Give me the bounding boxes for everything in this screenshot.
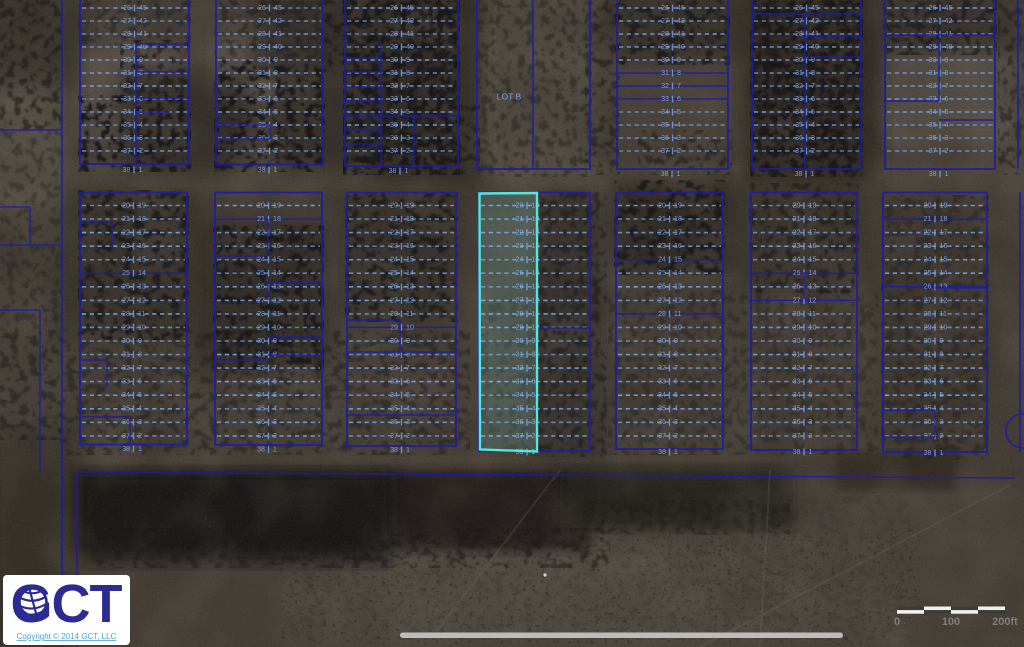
- svg-text:1: 1: [274, 166, 278, 174]
- svg-text:2: 2: [677, 147, 681, 155]
- svg-text:22: 22: [390, 228, 398, 236]
- svg-text:30: 30: [661, 56, 669, 64]
- svg-text:25: 25: [122, 269, 130, 277]
- svg-text:7: 7: [677, 82, 681, 90]
- svg-text:17: 17: [674, 228, 682, 236]
- svg-text:31: 31: [122, 350, 130, 358]
- svg-text:3: 3: [273, 418, 277, 426]
- svg-text:29: 29: [258, 43, 266, 51]
- svg-text:41: 41: [677, 30, 685, 38]
- svg-text:16: 16: [138, 242, 146, 250]
- svg-text:9: 9: [406, 337, 410, 345]
- svg-text:42: 42: [139, 17, 147, 25]
- svg-text:35: 35: [390, 405, 398, 413]
- svg-text:40: 40: [406, 43, 414, 51]
- svg-text:5: 5: [809, 391, 813, 399]
- svg-text:30: 30: [795, 56, 803, 64]
- svg-text:32: 32: [658, 364, 666, 372]
- svg-text:23: 23: [122, 242, 130, 250]
- svg-text:33: 33: [257, 377, 265, 385]
- svg-text:45: 45: [811, 4, 819, 12]
- svg-text:1: 1: [138, 445, 142, 453]
- svg-text:20: 20: [793, 201, 801, 209]
- svg-text:38: 38: [929, 170, 937, 178]
- svg-text:29: 29: [924, 323, 932, 331]
- svg-text:4: 4: [138, 405, 142, 413]
- svg-text:45: 45: [677, 4, 685, 12]
- svg-text:13: 13: [674, 283, 682, 291]
- svg-text:5: 5: [940, 391, 944, 399]
- svg-text:32: 32: [661, 82, 669, 90]
- svg-text:14: 14: [406, 269, 414, 277]
- svg-text:42: 42: [811, 17, 819, 25]
- svg-text:27: 27: [390, 296, 398, 304]
- svg-text:36: 36: [929, 134, 937, 142]
- svg-text:26: 26: [658, 283, 666, 291]
- svg-text:2: 2: [406, 147, 410, 155]
- svg-text:24: 24: [924, 256, 932, 264]
- svg-text:11: 11: [273, 310, 280, 318]
- svg-text:23: 23: [658, 242, 666, 250]
- svg-text:7: 7: [940, 364, 944, 372]
- svg-text:6: 6: [674, 377, 678, 385]
- svg-text:5: 5: [406, 391, 410, 399]
- svg-text:19: 19: [940, 201, 948, 209]
- svg-text:41: 41: [945, 30, 953, 38]
- svg-text:2: 2: [274, 147, 278, 155]
- svg-text:9: 9: [273, 337, 277, 345]
- svg-text:14: 14: [809, 269, 817, 277]
- svg-text:29: 29: [122, 323, 130, 331]
- svg-text:27: 27: [122, 296, 130, 304]
- svg-text:31: 31: [257, 350, 265, 358]
- svg-text:3: 3: [138, 418, 142, 426]
- svg-text:32: 32: [257, 364, 265, 372]
- svg-text:36: 36: [658, 418, 666, 426]
- svg-text:31: 31: [793, 350, 801, 358]
- svg-text:6: 6: [945, 95, 949, 103]
- svg-text:31: 31: [658, 350, 666, 358]
- svg-text:42: 42: [274, 17, 282, 25]
- svg-text:40: 40: [811, 43, 819, 51]
- svg-text:5: 5: [674, 391, 678, 399]
- svg-text:41: 41: [274, 30, 282, 38]
- svg-text:3: 3: [809, 418, 813, 426]
- svg-text:28: 28: [257, 310, 265, 318]
- svg-text:29: 29: [390, 323, 398, 331]
- svg-text:17: 17: [138, 228, 146, 236]
- svg-text:37: 37: [122, 432, 130, 440]
- svg-text:35: 35: [658, 405, 666, 413]
- svg-text:30: 30: [122, 337, 130, 345]
- svg-text:28: 28: [390, 30, 398, 38]
- svg-text:1: 1: [677, 170, 681, 178]
- svg-text:9: 9: [945, 56, 949, 64]
- svg-text:6: 6: [274, 95, 278, 103]
- svg-text:12: 12: [809, 296, 817, 304]
- svg-text:22: 22: [257, 228, 265, 236]
- svg-text:19: 19: [138, 201, 146, 209]
- svg-text:32: 32: [258, 82, 266, 90]
- svg-text:4: 4: [811, 121, 815, 129]
- svg-text:29: 29: [123, 43, 131, 51]
- svg-text:22: 22: [793, 228, 801, 236]
- svg-text:27: 27: [658, 296, 666, 304]
- svg-text:33: 33: [661, 95, 669, 103]
- svg-text:30: 30: [123, 56, 131, 64]
- svg-text:26: 26: [793, 283, 801, 291]
- svg-text:36: 36: [924, 418, 932, 426]
- svg-text:23: 23: [257, 242, 265, 250]
- svg-text:3: 3: [406, 418, 410, 426]
- svg-text:27: 27: [257, 296, 265, 304]
- svg-text:5: 5: [677, 108, 681, 116]
- svg-text:41: 41: [406, 30, 414, 38]
- svg-text:28: 28: [929, 30, 937, 38]
- svg-text:34: 34: [795, 108, 803, 116]
- svg-text:9: 9: [274, 56, 278, 64]
- svg-text:9: 9: [139, 56, 143, 64]
- svg-text:34: 34: [658, 391, 666, 399]
- svg-text:38: 38: [661, 170, 669, 178]
- svg-text:28: 28: [661, 30, 669, 38]
- svg-text:27: 27: [793, 296, 801, 304]
- svg-text:4: 4: [677, 121, 681, 129]
- svg-text:18: 18: [273, 215, 281, 223]
- svg-text:15: 15: [809, 256, 817, 264]
- svg-text:7: 7: [406, 82, 410, 90]
- svg-text:35: 35: [661, 121, 669, 129]
- svg-text:20: 20: [122, 201, 130, 209]
- svg-text:9: 9: [138, 337, 142, 345]
- svg-text:28: 28: [795, 30, 803, 38]
- svg-text:4: 4: [406, 405, 410, 413]
- svg-text:27: 27: [929, 17, 937, 25]
- svg-text:2: 2: [406, 432, 410, 440]
- svg-text:36: 36: [257, 418, 265, 426]
- svg-text:6: 6: [406, 95, 410, 103]
- svg-text:28: 28: [390, 310, 398, 318]
- svg-text:11: 11: [809, 310, 816, 318]
- svg-text:35: 35: [929, 121, 937, 129]
- svg-text:12: 12: [273, 296, 281, 304]
- svg-text:36: 36: [661, 134, 669, 142]
- svg-text:2: 2: [811, 147, 815, 155]
- svg-text:31: 31: [258, 69, 266, 77]
- svg-text:1: 1: [273, 445, 277, 453]
- svg-text:33: 33: [924, 377, 932, 385]
- svg-text:17: 17: [406, 228, 414, 236]
- svg-text:7: 7: [138, 364, 142, 372]
- svg-text:26: 26: [257, 283, 265, 291]
- svg-text:3: 3: [677, 134, 681, 142]
- svg-text:4: 4: [406, 121, 410, 129]
- svg-text:32: 32: [123, 82, 131, 90]
- svg-text:37: 37: [661, 147, 669, 155]
- svg-text:45: 45: [945, 4, 953, 12]
- svg-text:36: 36: [123, 134, 131, 142]
- svg-text:18: 18: [406, 215, 414, 223]
- svg-text:6: 6: [809, 377, 813, 385]
- svg-text:21: 21: [257, 215, 265, 223]
- svg-text:8: 8: [677, 69, 681, 77]
- svg-text:25: 25: [924, 269, 932, 277]
- svg-text:20: 20: [390, 201, 398, 209]
- svg-text:4: 4: [945, 121, 949, 129]
- svg-text:15: 15: [406, 256, 414, 264]
- svg-text:3: 3: [945, 134, 949, 142]
- svg-text:19: 19: [406, 201, 414, 209]
- svg-text:38: 38: [258, 166, 266, 174]
- svg-text:35: 35: [122, 405, 130, 413]
- svg-text:30: 30: [390, 56, 398, 64]
- svg-text:33: 33: [122, 377, 130, 385]
- svg-text:12: 12: [674, 296, 682, 304]
- svg-text:26: 26: [929, 4, 937, 12]
- svg-text:30: 30: [390, 337, 398, 345]
- svg-text:15: 15: [674, 256, 682, 264]
- svg-text:6: 6: [138, 377, 142, 385]
- svg-text:37: 37: [795, 147, 803, 155]
- svg-text:34: 34: [661, 108, 669, 116]
- svg-text:6: 6: [677, 95, 681, 103]
- svg-text:38: 38: [658, 448, 666, 456]
- svg-text:20: 20: [257, 201, 265, 209]
- svg-text:11: 11: [138, 310, 145, 318]
- svg-text:24: 24: [122, 256, 130, 264]
- svg-text:38: 38: [795, 170, 803, 178]
- svg-text:40: 40: [274, 43, 282, 51]
- svg-text:7: 7: [809, 364, 813, 372]
- svg-text:14: 14: [273, 269, 281, 277]
- svg-text:3: 3: [139, 134, 143, 142]
- svg-text:2: 2: [139, 147, 143, 155]
- svg-text:18: 18: [674, 215, 682, 223]
- svg-text:26: 26: [390, 4, 398, 12]
- svg-text:28: 28: [122, 310, 130, 318]
- svg-text:20: 20: [658, 201, 666, 209]
- svg-text:100: 100: [942, 616, 960, 628]
- svg-text:34: 34: [390, 108, 398, 116]
- svg-text:45: 45: [406, 4, 414, 12]
- svg-text:27: 27: [390, 17, 398, 25]
- svg-text:34: 34: [793, 391, 801, 399]
- svg-text:37: 37: [924, 432, 932, 440]
- svg-text:20: 20: [924, 201, 932, 209]
- svg-text:10: 10: [273, 323, 281, 331]
- svg-text:2: 2: [809, 432, 813, 440]
- svg-text:30: 30: [257, 337, 265, 345]
- svg-text:21: 21: [658, 215, 666, 223]
- svg-text:34: 34: [122, 391, 130, 399]
- svg-text:40: 40: [945, 43, 953, 51]
- svg-text:31: 31: [924, 350, 932, 358]
- svg-text:33: 33: [658, 377, 666, 385]
- svg-text:26: 26: [122, 283, 130, 291]
- svg-text:10: 10: [406, 323, 414, 331]
- svg-text:6: 6: [406, 377, 410, 385]
- svg-text:31: 31: [390, 69, 398, 77]
- svg-text:35: 35: [793, 405, 801, 413]
- svg-text:4: 4: [940, 405, 944, 413]
- svg-text:26: 26: [795, 4, 803, 12]
- svg-text:5: 5: [273, 391, 277, 399]
- svg-text:35: 35: [257, 405, 265, 413]
- svg-text:1: 1: [674, 448, 678, 456]
- svg-text:7: 7: [406, 364, 410, 372]
- svg-text:11: 11: [940, 310, 947, 318]
- svg-text:8: 8: [274, 69, 278, 77]
- svg-text:37: 37: [793, 432, 801, 440]
- svg-text:24: 24: [257, 256, 265, 264]
- svg-text:17: 17: [940, 228, 948, 236]
- svg-text:35: 35: [924, 405, 932, 413]
- svg-text:9: 9: [677, 56, 681, 64]
- svg-text:23: 23: [793, 242, 801, 250]
- svg-text:33: 33: [390, 95, 398, 103]
- svg-text:1: 1: [406, 446, 410, 454]
- svg-text:32: 32: [390, 364, 398, 372]
- svg-text:37: 37: [390, 432, 398, 440]
- svg-text:21: 21: [390, 215, 398, 223]
- svg-text:0: 0: [894, 616, 900, 628]
- svg-text:29: 29: [795, 43, 803, 51]
- svg-text:36: 36: [793, 418, 801, 426]
- svg-text:10: 10: [940, 323, 948, 331]
- svg-text:4: 4: [139, 121, 143, 129]
- svg-text:35: 35: [123, 121, 131, 129]
- svg-text:34: 34: [123, 108, 131, 116]
- svg-text:11: 11: [674, 310, 681, 318]
- svg-text:13: 13: [940, 283, 948, 291]
- svg-text:1: 1: [811, 170, 815, 178]
- svg-text:19: 19: [273, 201, 281, 209]
- svg-text:12: 12: [406, 296, 414, 304]
- svg-text:9: 9: [940, 337, 944, 345]
- svg-text:1: 1: [139, 166, 143, 174]
- svg-text:29: 29: [661, 43, 669, 51]
- svg-text:27: 27: [795, 17, 803, 25]
- svg-text:34: 34: [924, 391, 932, 399]
- svg-text:29: 29: [257, 323, 265, 331]
- svg-text:13: 13: [809, 283, 817, 291]
- svg-text:29: 29: [929, 43, 937, 51]
- svg-text:7: 7: [945, 82, 949, 90]
- svg-text:26: 26: [390, 283, 398, 291]
- svg-text:6: 6: [940, 377, 944, 385]
- svg-text:34: 34: [257, 391, 265, 399]
- svg-text:5: 5: [274, 108, 278, 116]
- svg-text:8: 8: [945, 69, 949, 77]
- svg-text:15: 15: [273, 256, 281, 264]
- svg-text:16: 16: [809, 242, 817, 250]
- svg-text:LOT B: LOT B: [497, 91, 522, 101]
- svg-text:10: 10: [138, 323, 146, 331]
- svg-text:6: 6: [139, 95, 143, 103]
- svg-text:2: 2: [674, 432, 678, 440]
- svg-text:13: 13: [406, 283, 414, 291]
- svg-text:11: 11: [406, 310, 413, 318]
- svg-text:3: 3: [674, 418, 678, 426]
- svg-text:6: 6: [811, 95, 815, 103]
- svg-text:38: 38: [257, 445, 265, 453]
- svg-text:30: 30: [929, 56, 937, 64]
- svg-text:3: 3: [274, 134, 278, 142]
- svg-text:31: 31: [929, 69, 937, 77]
- svg-text:30: 30: [658, 337, 666, 345]
- svg-text:42: 42: [945, 17, 953, 25]
- svg-text:38: 38: [389, 167, 397, 175]
- svg-text:18: 18: [809, 215, 817, 223]
- svg-text:4: 4: [809, 405, 813, 413]
- svg-text:32: 32: [122, 364, 130, 372]
- svg-text:27: 27: [661, 17, 669, 25]
- svg-text:13: 13: [273, 283, 281, 291]
- svg-text:2: 2: [940, 432, 944, 440]
- svg-text:31: 31: [795, 69, 803, 77]
- svg-text:13: 13: [138, 283, 146, 291]
- svg-text:23: 23: [390, 242, 398, 250]
- svg-text:5: 5: [811, 108, 815, 116]
- svg-text:5: 5: [945, 108, 949, 116]
- svg-text:32: 32: [795, 82, 803, 90]
- svg-text:3: 3: [811, 134, 815, 142]
- svg-text:26: 26: [661, 4, 669, 12]
- svg-text:38: 38: [123, 166, 131, 174]
- svg-text:16: 16: [406, 242, 414, 250]
- svg-text:25: 25: [390, 269, 398, 277]
- svg-text:35: 35: [795, 121, 803, 129]
- svg-text:8: 8: [139, 69, 143, 77]
- svg-text:21: 21: [924, 215, 932, 223]
- svg-text:Copyright © 2014 GCT, LLC: Copyright © 2014 GCT, LLC: [17, 632, 117, 641]
- svg-text:22: 22: [924, 228, 932, 236]
- svg-text:36: 36: [258, 134, 266, 142]
- svg-text:36: 36: [795, 134, 803, 142]
- svg-text:42: 42: [406, 17, 414, 25]
- svg-text:24: 24: [658, 256, 666, 264]
- svg-text:6: 6: [273, 377, 277, 385]
- svg-text:41: 41: [139, 30, 147, 38]
- svg-text:22: 22: [122, 228, 130, 236]
- svg-text:32: 32: [390, 82, 398, 90]
- svg-text:25: 25: [793, 269, 801, 277]
- svg-text:10: 10: [674, 323, 682, 331]
- svg-text:2: 2: [945, 147, 949, 155]
- svg-text:24: 24: [793, 256, 801, 264]
- svg-text:33: 33: [795, 95, 803, 103]
- svg-text:17: 17: [809, 228, 817, 236]
- svg-text:29: 29: [793, 323, 801, 331]
- svg-text:4: 4: [674, 405, 678, 413]
- svg-text:18: 18: [940, 215, 948, 223]
- svg-text:36: 36: [122, 418, 130, 426]
- svg-text:8: 8: [811, 69, 815, 77]
- svg-text:33: 33: [793, 377, 801, 385]
- svg-text:38: 38: [793, 448, 801, 456]
- svg-text:33: 33: [123, 95, 131, 103]
- svg-text:4: 4: [274, 121, 278, 129]
- svg-text:2: 2: [273, 432, 277, 440]
- svg-text:30: 30: [258, 56, 266, 64]
- svg-text:7: 7: [274, 82, 278, 90]
- svg-text:16: 16: [940, 242, 948, 250]
- svg-text:24: 24: [390, 256, 398, 264]
- svg-text:36: 36: [390, 418, 398, 426]
- svg-text:35: 35: [390, 121, 398, 129]
- svg-text:27: 27: [258, 17, 266, 25]
- svg-text:21: 21: [122, 215, 130, 223]
